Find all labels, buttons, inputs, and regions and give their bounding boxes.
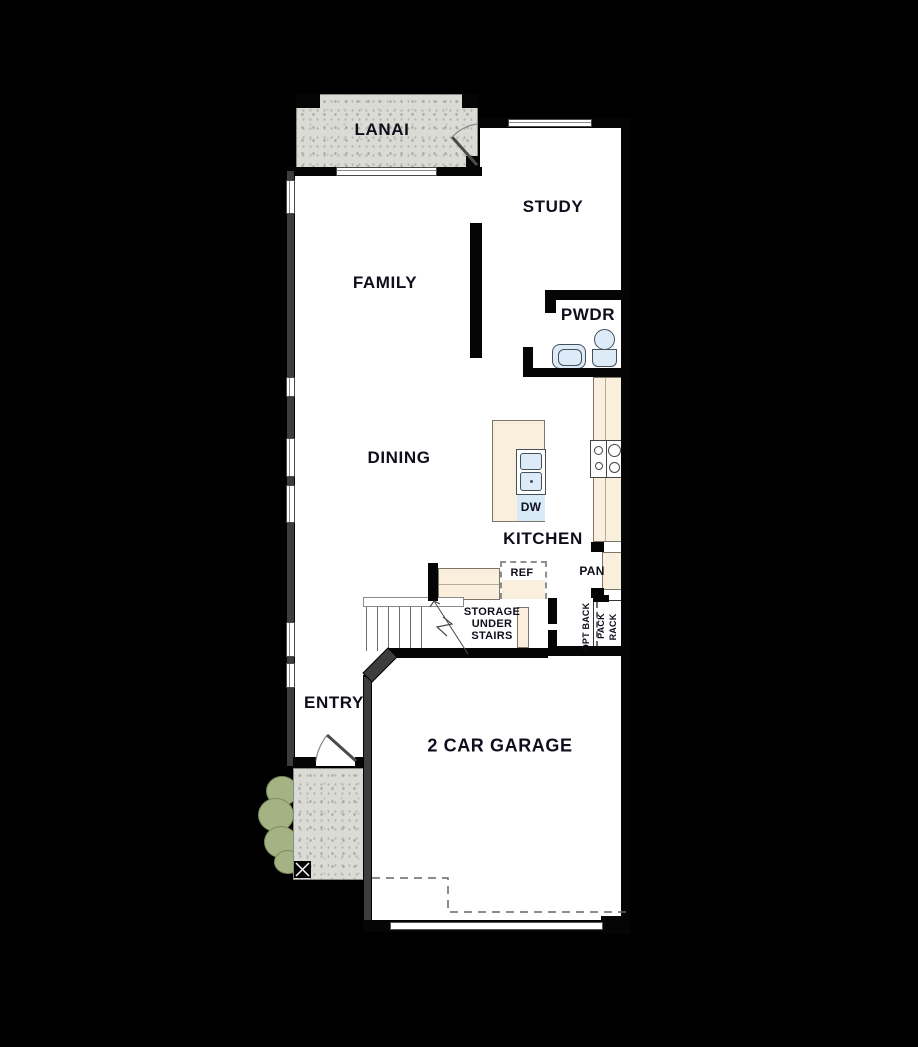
refrigerator-fill: [502, 580, 545, 599]
window-left-2: [286, 377, 295, 397]
wall-ref-counter-left: [428, 563, 438, 601]
wall-pwdr-bottom: [523, 368, 630, 377]
cooktop-burner-4: [609, 462, 620, 473]
stair-treads: [366, 607, 432, 651]
wall-pwdr-bottom-stub: [523, 347, 533, 377]
lanai-post-top-right: [462, 94, 478, 108]
wall-storage-right-upper: [548, 598, 557, 624]
island-sink-basin-1: [520, 453, 542, 470]
wall-garage-left: [363, 676, 372, 932]
lanai-sliding-door: [336, 167, 437, 176]
wall-storage-bottom: [388, 648, 548, 658]
rack-label-line2: PACK: [596, 613, 606, 639]
stair-landing-edge: [363, 597, 464, 607]
floor-garage: [363, 648, 630, 932]
window-left-3: [286, 438, 295, 477]
window-left-5: [286, 622, 295, 657]
toilet-bowl: [594, 329, 615, 350]
wall-garage-corner-br: [601, 916, 630, 934]
storage-label-line1: STORAGE: [464, 606, 520, 618]
room-label-kitchen: KITCHEN: [503, 529, 583, 549]
porch-post: [294, 861, 311, 878]
rack-label-line1: OPT BACK: [581, 603, 591, 652]
wall-entry-bottom-left: [293, 757, 316, 768]
room-label-garage: 2 CAR GARAGE: [427, 736, 572, 757]
wall-niche-top-stub: [593, 595, 609, 602]
cooktop-burner-1: [594, 446, 603, 455]
rack-label-line3: RACK: [608, 614, 618, 641]
ref-counter-seam: [439, 584, 499, 585]
fixture-label-pantry: PAN: [579, 564, 604, 578]
wall-lanai-right: [437, 167, 482, 176]
fixture-label-refrigerator: REF: [511, 567, 534, 579]
lanai-post-top-left: [296, 94, 320, 108]
storage-label-line3: STAIRS: [471, 630, 512, 642]
storage-label-line2: UNDER: [472, 618, 513, 630]
island-sink-drain: [530, 480, 533, 483]
pwdr-sink-basin: [558, 349, 582, 366]
cooktop-burner-2: [595, 462, 603, 470]
wall-right-exterior: [621, 118, 630, 934]
fixture-label-dishwasher: DW: [521, 500, 542, 514]
window-left-4: [286, 485, 295, 523]
room-label-pwdr: PWDR: [561, 305, 615, 325]
wall-family-study-divider: [470, 223, 482, 358]
room-label-entry: ENTRY: [304, 693, 364, 713]
window-study: [508, 119, 592, 127]
room-label-lanai: LANAI: [355, 120, 410, 140]
room-label-family: FAMILY: [353, 273, 417, 293]
cooktop-burner-3: [608, 444, 621, 457]
window-left-1: [286, 180, 295, 214]
room-label-dining: DINING: [367, 448, 430, 468]
garage-door: [390, 922, 603, 930]
wall-pwdr-top-stub: [545, 290, 556, 313]
cooktop-divider: [606, 441, 607, 477]
wall-pantry-top: [591, 542, 604, 552]
pantry-shelf: [602, 552, 622, 590]
window-left-6: [286, 663, 295, 688]
toilet-tank: [592, 349, 617, 367]
floor-plan: LANAI STUDY FAMILY PWDR DINING KITCHEN E…: [0, 0, 918, 1047]
wall-pwdr-top: [545, 290, 630, 300]
wall-lanai-left: [288, 167, 336, 176]
room-label-study: STUDY: [523, 197, 584, 217]
